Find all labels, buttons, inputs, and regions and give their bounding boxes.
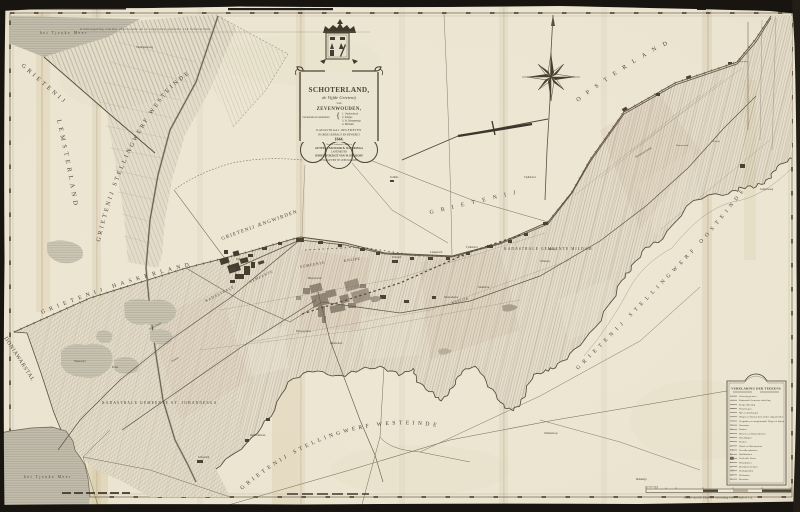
svg-text:Grietenij grenzen: Grietenij grenzen [739, 395, 757, 398]
svg-text:VERKLARING DER TEEKENS: VERKLARING DER TEEKENS [731, 387, 781, 391]
svg-text:--·: --· [730, 432, 733, 435]
svg-text:Naar de kadastrale stukken: Naar de kadastrale stukken [326, 143, 353, 146]
svg-text:het Tjeuke Meer: het Tjeuke Meer [24, 475, 72, 479]
svg-text:Vaarten: Vaarten [739, 428, 747, 431]
svg-text:·~·: ·~· [730, 437, 733, 440]
svg-text:Bosschen: Bosschen [739, 478, 749, 481]
svg-text:Nieuwehorne: Nieuwehorne [444, 296, 459, 299]
svg-text:LANDMETER: LANDMETER [331, 151, 347, 154]
svg-text:Oudehorne: Oudehorne [478, 286, 490, 289]
svg-text:Oldeberkoop: Oldeberkoop [544, 432, 558, 435]
svg-text:Boomkweekerijen: Boomkweekerijen [739, 466, 758, 469]
svg-text:Verdeelde Venen: Verdeelde Venen [739, 457, 757, 460]
svg-text:····: ···· [730, 420, 734, 423]
svg-text:Jubbega: Jubbega [548, 248, 557, 251]
svg-text:SCHOTERLAND,: SCHOTERLAND, [309, 86, 370, 94]
svg-text:Wegen en Vaarten door andere a: Wegen en Vaarten door andere afgescheide… [739, 416, 784, 419]
svg-text:Nieuweschoot: Nieuweschoot [296, 330, 311, 333]
svg-text:----: ---- [730, 416, 734, 419]
svg-text:KADASTRAAL OPGEMETEN: KADASTRAAL OPGEMETEN [316, 128, 362, 132]
svg-text:Langezwaag: Langezwaag [760, 188, 774, 191]
svg-text:Tjalleberd: Tjalleberd [524, 176, 536, 179]
svg-text:Scheidingen: Scheidingen [739, 437, 752, 440]
svg-text:Weilanden: Weilanden [739, 474, 750, 477]
svg-text:van: van [337, 101, 342, 105]
svg-text:Oudeschoot: Oudeschoot [330, 342, 343, 345]
svg-text:Wind- en Watermolens: Wind- en Watermolens [739, 445, 762, 448]
svg-text:▪ ▫: ▪ ▫ [730, 461, 733, 464]
svg-text:——: —— [729, 412, 736, 415]
svg-text:ONDER TOEZIGT VAN W. EEKHOFF: ONDER TOEZIGT VAN W. EEKHOFF [315, 154, 363, 157]
svg-text:Heerenveen: Heerenveen [308, 277, 322, 280]
svg-text:Makkinga: Makkinga [636, 478, 647, 481]
svg-text:Woonhuizen: Woonhuizen [739, 461, 752, 464]
svg-text:Kadastrale Gemeente afdeeling: Kadastrale Gemeente afdeeling [739, 399, 771, 402]
svg-text:Kerken: Kerken [739, 441, 747, 444]
svg-text:Nannewijd: Nannewijd [74, 360, 86, 363]
svg-text:Tjalleberd: Tjalleberd [466, 246, 478, 249]
svg-text:— —: — — [729, 395, 736, 398]
svg-text:Nijehaske: Nijehaske [236, 258, 248, 261]
svg-text:═══: ═══ [729, 407, 736, 410]
svg-text:Schaal van 600 Ellen ; in verh: Schaal van 600 Ellen ; in verhouding van… [684, 496, 753, 500]
svg-text:1844.: 1844. [335, 137, 344, 142]
svg-text:Rij- en Zandwegen: Rij- en Zandwegen [739, 412, 759, 415]
svg-text:Rivieren en Binnenslooten: Rivieren en Binnenslooten [739, 432, 766, 435]
svg-text:Duurswoude: Duurswoude [676, 144, 690, 147]
svg-text:UITGEGEVEN TE LEEUWARDEN: UITGEGEVEN TE LEEUWARDEN [320, 159, 359, 162]
svg-text:▪ ▪: ▪ ▪ [730, 441, 733, 444]
svg-text:KADASTRALE GEMEENTE ST. JO: KADASTRALE GEMEENTE ST. JOHANNESGA [102, 401, 217, 405]
svg-text:Vierhuisterweg: Vierhuisterweg [136, 46, 154, 49]
svg-text:Vaarwater: Vaarwater [739, 424, 749, 427]
svg-text:Grensregeling van het afgeveen: Grensregeling van het afgeveende en te v… [80, 27, 212, 31]
svg-text:Vervallen plaatsen: Vervallen plaatsen [739, 449, 758, 452]
svg-text:Voetpaden en onafgemaakte Wege: Voetpaden en onafgemaakte Wegen of dijke… [739, 420, 785, 423]
svg-text:Rohel: Rohel [112, 366, 118, 369]
svg-text:Terband: Terband [392, 256, 402, 259]
svg-text:GETEEKEND DOOR B. SCHURINGA: GETEEKEND DOOR B. SCHURINGA [315, 147, 363, 150]
svg-text:300 200 100 0: 300 200 100 0 [645, 487, 659, 489]
svg-text:Schoterzijl: Schoterzijl [198, 456, 210, 459]
svg-text:het Tjeuke Meer: het Tjeuke Meer [40, 31, 88, 35]
svg-text:Wachthuizen: Wachthuizen [739, 453, 753, 456]
svg-text:Dorps afdeeling: Dorps afdeeling [739, 403, 756, 406]
svg-text:Straatwegen: Straatwegen [739, 407, 752, 410]
svg-text:-·-·: -·-· [730, 399, 734, 402]
svg-text:Heidegronden: Heidegronden [739, 470, 754, 473]
svg-text:Schurega: Schurega [540, 260, 550, 263]
svg-text:Luinjeberd: Luinjeberd [430, 251, 443, 254]
svg-text:-··-: -··- [730, 403, 734, 406]
svg-text:Delfstrahuizen: Delfstrahuizen [250, 434, 266, 437]
svg-text:{: { [336, 111, 340, 121]
svg-text:Tolhuis: Tolhuis [390, 176, 398, 179]
svg-text:4. Mildam: 4. Mildam [342, 123, 354, 126]
svg-text:de Vijfde Grietenij: de Vijfde Grietenij [322, 95, 357, 100]
svg-text:bevattende de Gemeenten: bevattende de Gemeenten [303, 116, 330, 119]
svg-text:Hemrik: Hemrik [712, 140, 720, 143]
svg-text:Wijnjeterp: Wijnjeterp [737, 60, 748, 63]
